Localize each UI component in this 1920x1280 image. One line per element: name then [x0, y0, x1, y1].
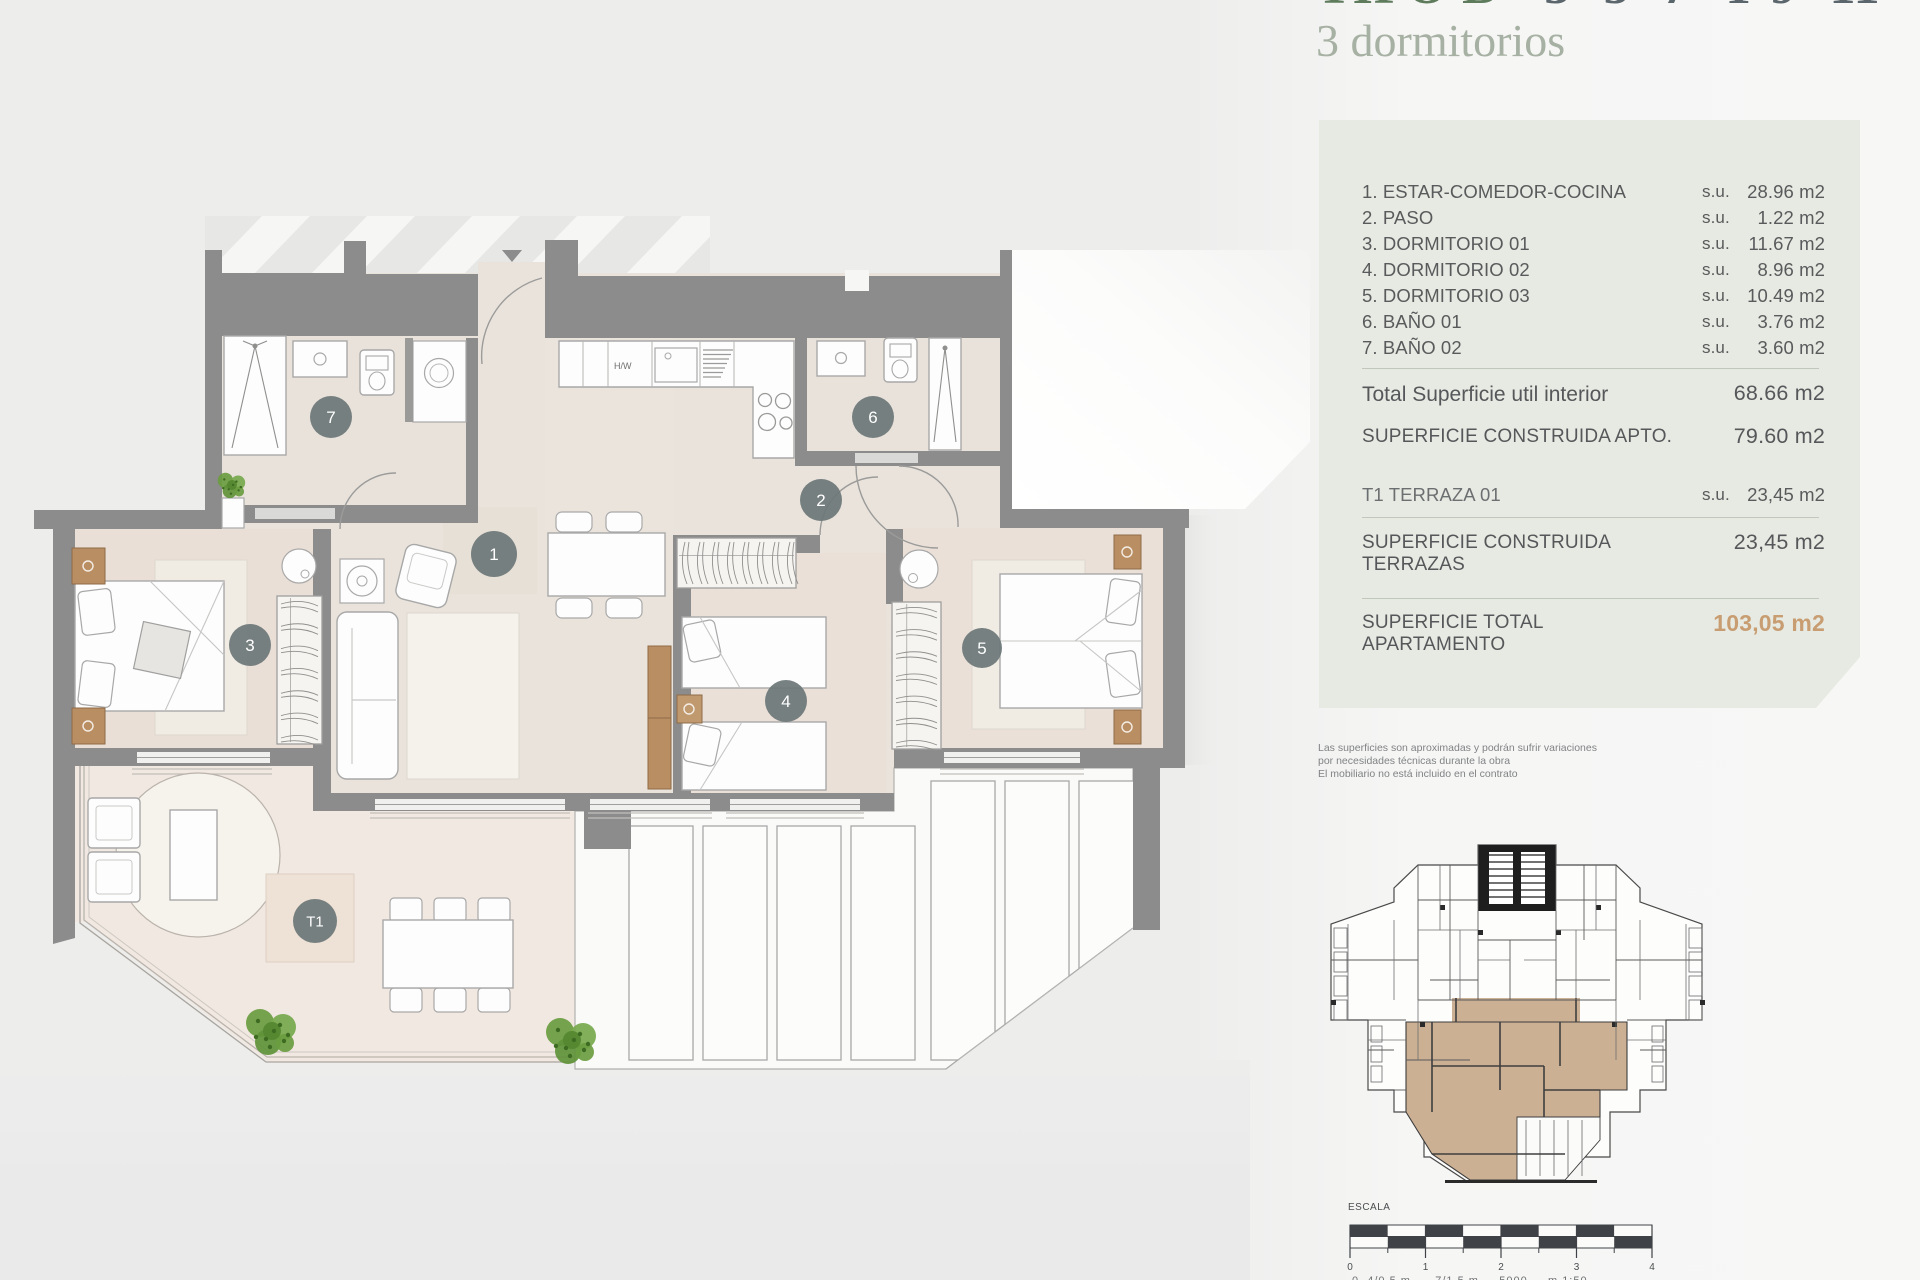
svg-text:2: 2 — [816, 491, 825, 510]
svg-text:T1: T1 — [306, 913, 324, 930]
svg-text:2: 2 — [1498, 1262, 1504, 1273]
svg-text:1: 1 — [1423, 1262, 1429, 1273]
svg-text:0: 0 — [1347, 1262, 1353, 1273]
svg-text:5: 5 — [977, 639, 986, 658]
svg-text:H/W: H/W — [614, 361, 632, 371]
svg-text:4: 4 — [781, 692, 790, 711]
svg-text:3: 3 — [1574, 1262, 1580, 1273]
svg-text:7: 7 — [326, 408, 335, 427]
svg-text:1: 1 — [489, 545, 498, 564]
svg-text:6: 6 — [868, 408, 877, 427]
svg-text:3: 3 — [245, 636, 254, 655]
svg-text:4: 4 — [1649, 1262, 1655, 1273]
